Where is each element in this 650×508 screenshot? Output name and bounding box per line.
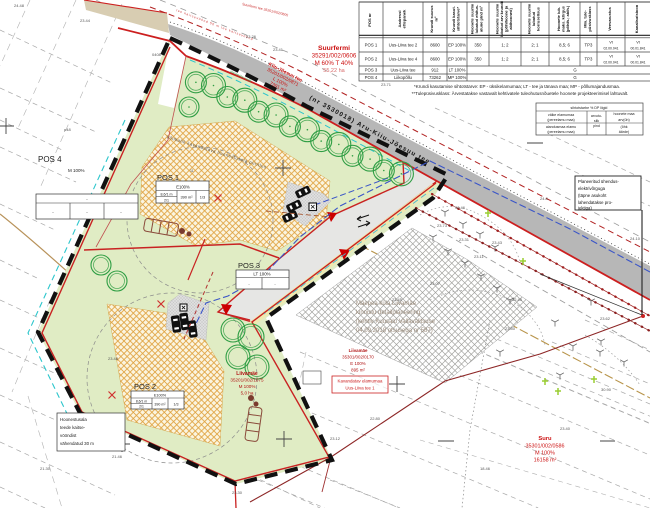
svg-text:350: 350 — [474, 43, 482, 48]
svg-text:2/1: 2/1 — [139, 405, 144, 409]
svg-text:POS 2: POS 2 — [134, 382, 156, 391]
svg-text:23.31: 23.31 — [459, 237, 470, 242]
svg-text:8600: 8600 — [430, 43, 440, 48]
svg-text:22.80: 22.80 — [370, 416, 381, 421]
svg-text:hoonete maa: hoonete maa — [614, 112, 635, 116]
svg-text:390 m²: 390 m² — [154, 403, 166, 407]
svg-text:E100%: E100% — [176, 185, 190, 190]
svg-text:POS 1: POS 1 — [365, 43, 378, 48]
svg-text:jektiga): jektiga) — [577, 206, 592, 211]
svg-text:POS 2: POS 2 — [365, 57, 378, 62]
svg-text:abihooned): abihooned) — [508, 8, 513, 30]
svg-text:8,5; 6: 8,5; 6 — [559, 57, 570, 62]
svg-text:m²: m² — [433, 16, 438, 22]
svg-text:21.46: 21.46 — [112, 454, 123, 459]
svg-text:23.48: 23.48 — [108, 356, 119, 361]
svg-text:POS 4: POS 4 — [38, 155, 62, 164]
svg-text:00.01.841: 00.01.841 — [630, 47, 645, 51]
svg-text:alune pind m²: alune pind m² — [479, 5, 484, 32]
svg-text:8,5; 6: 8,5; 6 — [559, 43, 570, 48]
svg-text:E100%: E100% — [154, 394, 167, 398]
svg-text:*Krundi kasutamise sihtotstarv: *Krundi kasutamise sihtotstarve: EP - ük… — [414, 84, 620, 89]
svg-text:Veevarustus: Veevarustus — [607, 6, 612, 30]
svg-text:8600: 8600 — [430, 57, 440, 62]
svg-text:23.26: 23.26 — [246, 34, 257, 39]
svg-text:35201/002/1075: 35201/002/1075 — [230, 378, 264, 383]
svg-text:32.40: 32.40 — [512, 297, 523, 302]
svg-text:ettepanek: ettepanek — [401, 9, 406, 28]
svg-text:35301/002/0586: 35301/002/0586 — [526, 444, 565, 450]
svg-text:30.90: 30.90 — [601, 387, 612, 392]
svg-text:TP3: TP3 — [585, 57, 593, 62]
svg-text:Liivamäe: Liivamäe — [236, 371, 258, 377]
svg-text:02.00.041: 02.00.041 — [603, 61, 618, 65]
svg-text:5,0 ha: 5,0 ha — [241, 391, 254, 396]
svg-text:8,6/1 m: 8,6/1 m — [161, 193, 173, 197]
svg-text:Uus-Liiva tee 2: Uus-Liiva tee 2 — [389, 43, 418, 48]
svg-text:vähendatud 30 m: vähendatud 30 m — [60, 441, 94, 446]
svg-text:sihtotstarve*: sihtotstarve* — [455, 6, 460, 31]
svg-text:kinnistu detailplaneering: kinnistu detailplaneering — [356, 310, 420, 316]
svg-text:0408: 0408 — [152, 52, 162, 57]
svg-text:24.48: 24.48 — [14, 3, 25, 8]
svg-text:23.50: 23.50 — [505, 326, 516, 331]
svg-text:23.45: 23.45 — [392, 297, 403, 302]
svg-text:2/1: 2/1 — [164, 199, 169, 203]
svg-text:POS 3: POS 3 — [365, 68, 378, 73]
svg-text:p48: p48 — [64, 127, 71, 132]
svg-text:EP 100%: EP 100% — [448, 43, 466, 48]
svg-text:LT 100%: LT 100% — [253, 272, 270, 277]
svg-text:Planeeritud ühendus-: Planeeritud ühendus- — [578, 179, 619, 184]
svg-text:Uus-Liiva tee 1: Uus-Liiva tee 1 — [345, 386, 375, 391]
svg-text:21.30: 21.30 — [40, 466, 51, 471]
svg-text:äärde): äärde) — [619, 130, 629, 134]
svg-text:TP3: TP3 — [585, 43, 593, 48]
svg-text:1; 2: 1; 2 — [501, 43, 509, 48]
svg-text:vööndist: vööndist — [60, 433, 77, 438]
svg-text:23.12: 23.12 — [330, 436, 341, 441]
svg-text:(pereelamu maa): (pereelamu maa) — [547, 118, 574, 122]
svg-text:püsivusklass: püsivusklass — [587, 6, 592, 32]
svg-text:EP 100%: EP 100% — [448, 57, 466, 62]
svg-text:30.46: 30.46 — [455, 205, 466, 210]
svg-text:23.30: 23.30 — [232, 490, 243, 495]
svg-text:M 100%: M 100% — [535, 451, 555, 457]
svg-text:23.73: 23.73 — [437, 223, 448, 228]
svg-text:sihtotstarbe % DP liigid: sihtotstarbe % DP liigid — [571, 106, 608, 110]
svg-text:POS nr: POS nr — [367, 13, 372, 27]
svg-text:912: 912 — [431, 68, 439, 73]
svg-text:M 100%: M 100% — [68, 168, 85, 173]
svg-text:väike elamumaa: väike elamumaa — [548, 113, 574, 117]
svg-text:Suurfermi: Suurfermi — [318, 45, 350, 52]
svg-text:23.71: 23.71 — [381, 82, 392, 87]
svg-text:Hoonestusala: Hoonestusala — [60, 417, 87, 422]
svg-text:(pereelamu maa): (pereelamu maa) — [547, 130, 574, 134]
svg-text:23.07: 23.07 — [430, 281, 441, 286]
svg-text:Suru: Suru — [538, 436, 552, 442]
svg-text:Liivamäe: Liivamäe — [349, 348, 368, 353]
svg-text:11: 11 — [190, 169, 194, 173]
svg-text:korruselisus: korruselisus — [536, 6, 541, 31]
svg-text:Mäepea küla Liivamäe: Mäepea küla Liivamäe — [356, 301, 417, 307]
svg-text:35291/002/0606: 35291/002/0606 — [312, 53, 357, 60]
svg-text:Kanalisatsioon: Kanalisatsioon — [634, 4, 639, 33]
svg-text:02.00.041: 02.00.041 — [603, 47, 618, 51]
svg-text:1/3: 1/3 — [174, 403, 179, 407]
svg-text:24.8: 24.8 — [540, 196, 549, 201]
svg-text:pind: pind — [593, 124, 600, 128]
svg-text:23.40: 23.40 — [560, 426, 571, 431]
svg-text:23.44: 23.44 — [80, 18, 91, 23]
svg-text:aiandusmaa elamu: aiandusmaa elamu — [546, 125, 576, 129]
svg-text:Liikopõllu: Liikopõllu — [394, 75, 413, 80]
svg-text:M 60% T 40%: M 60% T 40% — [315, 60, 354, 67]
svg-text:18.46: 18.46 — [480, 466, 491, 471]
svg-text:23.41: 23.41 — [273, 47, 284, 52]
svg-text:1/3: 1/3 — [200, 195, 205, 200]
svg-text:(põhih.; abih.): (põhih.; abih.) — [565, 5, 570, 32]
svg-text:Kavandatav elamumaa: Kavandatav elamumaa — [338, 379, 383, 384]
svg-text:895 m²: 895 m² — [351, 368, 365, 373]
svg-text:73262: 73262 — [429, 75, 442, 80]
svg-text:16158 m²: 16158 m² — [534, 458, 557, 464]
svg-text:POS 1: POS 1 — [157, 173, 179, 182]
svg-text:teede kaitse-: teede kaitse- — [60, 425, 86, 430]
svg-text:2; 1: 2; 1 — [531, 57, 539, 62]
svg-text:390 m²: 390 m² — [180, 195, 193, 200]
svg-text:35301/002/0170: 35301/002/0170 — [342, 355, 374, 360]
svg-text:elektrivõrguga: elektrivõrguga — [578, 186, 606, 191]
svg-text:24.10: 24.10 — [630, 236, 641, 241]
svg-text:**Tulepüsivusklass: Ärvestatak: **Tulepüsivusklass: Ärvestatakse vastava… — [412, 90, 629, 96]
svg-text:MP 100%: MP 100% — [448, 75, 467, 80]
svg-text:LT 100%: LT 100% — [449, 68, 466, 73]
svg-text:POS 4: POS 4 — [365, 75, 378, 80]
svg-text:00.01.841: 00.01.841 — [630, 61, 645, 65]
svg-text:Uus-Liiva tee: Uus-Liiva tee — [390, 68, 416, 73]
svg-text:lahendatakse pro-: lahendatakse pro- — [578, 200, 613, 205]
svg-text:Uus-Liiva tee 4: Uus-Liiva tee 4 — [389, 57, 418, 62]
svg-text:(õhk: (õhk — [621, 125, 628, 129]
svg-text:2; 1: 2; 1 — [531, 43, 539, 48]
svg-text:23.11: 23.11 — [474, 254, 484, 259]
svg-text:350: 350 — [474, 57, 482, 62]
svg-text:M 100%: M 100% — [239, 384, 256, 389]
svg-text:arv(üh): arv(üh) — [618, 118, 629, 122]
svg-text:23.43: 23.43 — [492, 240, 503, 245]
svg-text:1; 2: 1; 2 — [501, 57, 509, 62]
svg-text:arvutu-: arvutu- — [591, 114, 603, 118]
svg-text:04.09.2018 otsusega nr 587): 04.09.2018 otsusega nr 587) — [356, 328, 433, 334]
svg-text:(kehtiv Kuusalu Vallavalitsuse: (kehtiv Kuusalu Vallavalitsuse — [356, 319, 436, 325]
svg-text:POS 3: POS 3 — [238, 261, 260, 270]
svg-text:(täpne asukoht: (täpne asukoht — [578, 193, 607, 198]
svg-text:8,6/1 m: 8,6/1 m — [136, 400, 147, 404]
svg-text:slik: slik — [594, 119, 599, 123]
svg-text:55,22 ha: 55,22 ha — [323, 68, 345, 74]
svg-text:E 100%: E 100% — [350, 361, 365, 366]
svg-text:23.62: 23.62 — [600, 316, 611, 321]
